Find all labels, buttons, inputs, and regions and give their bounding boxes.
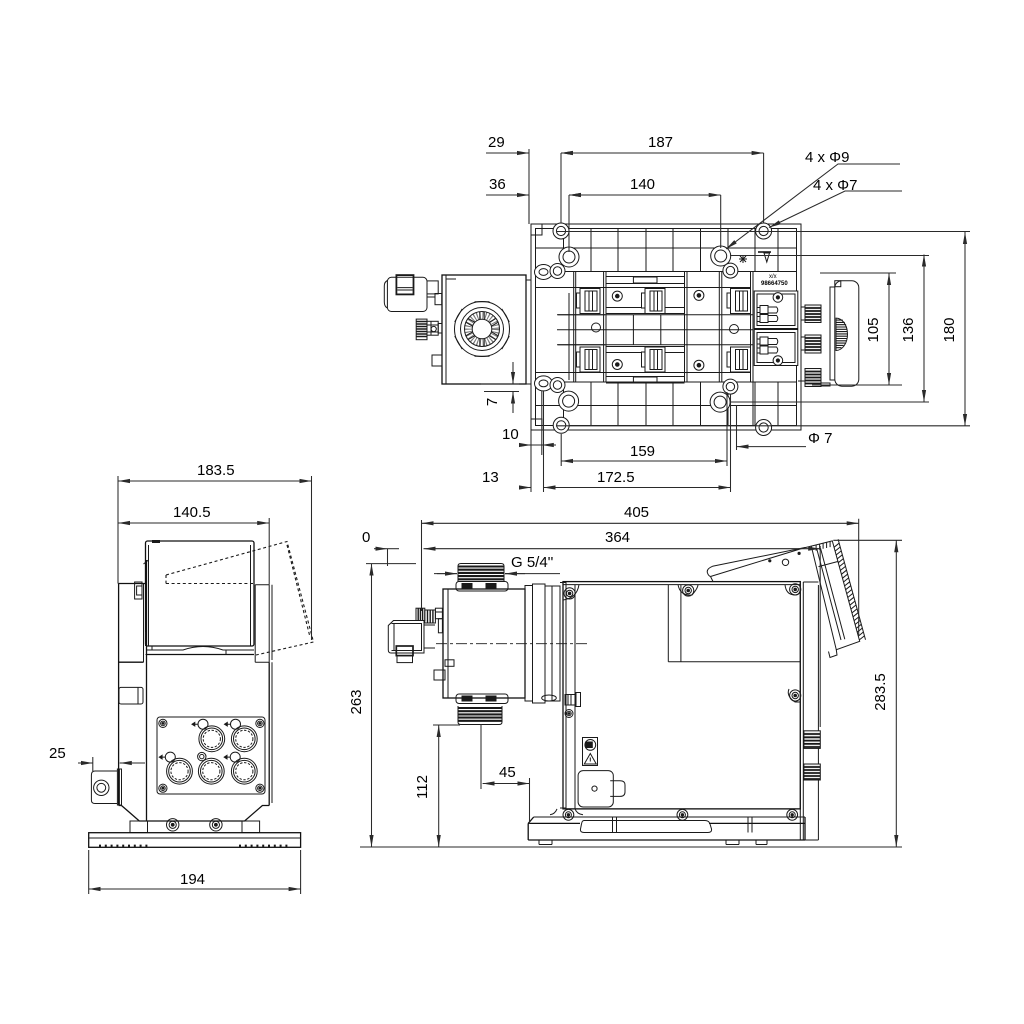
svg-text:25: 25: [49, 745, 66, 762]
svg-text:98664750: 98664750: [761, 281, 788, 287]
svg-text:112: 112: [414, 775, 431, 799]
svg-text:G 5/4'': G 5/4'': [511, 554, 554, 571]
svg-text:13: 13: [482, 469, 499, 486]
svg-text:Φ 7: Φ 7: [808, 430, 832, 447]
svg-text:29: 29: [488, 134, 505, 151]
svg-text:4 x Φ9: 4 x Φ9: [805, 149, 850, 166]
svg-text:183.5: 183.5: [197, 462, 235, 479]
svg-text:45: 45: [499, 764, 516, 781]
svg-text:105: 105: [865, 317, 882, 342]
svg-text:364: 364: [605, 529, 630, 546]
svg-text:194: 194: [180, 871, 205, 888]
svg-text:405: 405: [624, 504, 649, 521]
svg-text:36: 36: [489, 176, 506, 193]
svg-text:x/x: x/x: [769, 274, 777, 280]
svg-text:0: 0: [362, 529, 370, 546]
svg-text:187: 187: [648, 134, 673, 151]
svg-text:172.5: 172.5: [597, 469, 635, 486]
svg-text:7: 7: [484, 398, 501, 406]
svg-text:140: 140: [630, 176, 655, 193]
svg-text:263: 263: [348, 689, 365, 714]
svg-text:4 x Φ7: 4 x Φ7: [813, 177, 858, 194]
svg-text:283.5: 283.5: [872, 673, 889, 711]
svg-text:10: 10: [502, 426, 519, 443]
svg-text:159: 159: [630, 443, 655, 460]
svg-text:180: 180: [941, 317, 958, 342]
svg-text:140.5: 140.5: [173, 504, 211, 521]
svg-text:136: 136: [900, 317, 917, 342]
